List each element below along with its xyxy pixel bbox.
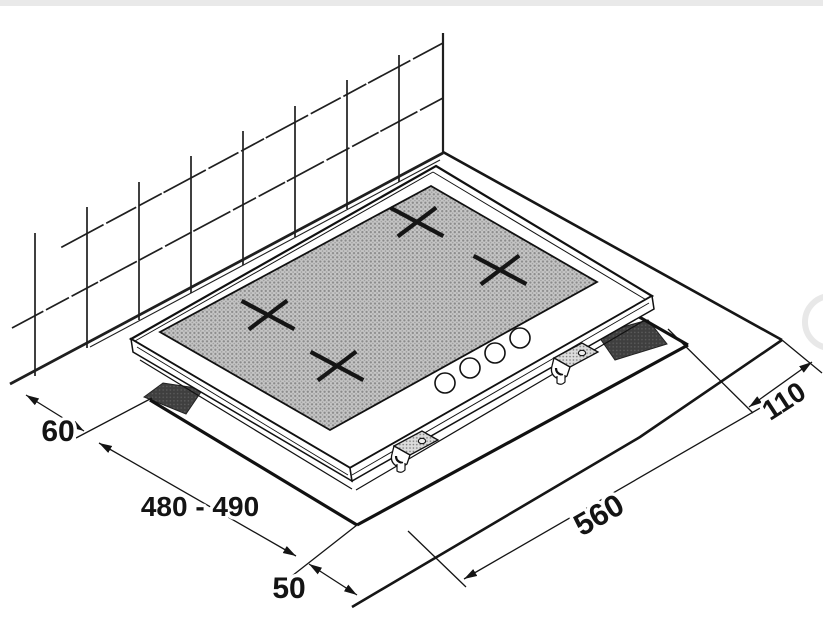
label-wall-clearance: 60 <box>41 415 74 448</box>
installation-diagram-page: 60 480 - 490 50 560 110 <box>0 0 823 626</box>
hob-installation-diagram: 60 480 - 490 50 560 110 <box>0 0 823 626</box>
control-knob <box>510 328 530 348</box>
bracket-screw-hole <box>578 350 585 355</box>
control-knob <box>435 373 455 393</box>
control-knob <box>485 343 505 363</box>
top-bar <box>0 0 823 6</box>
label-front-clearance: 50 <box>272 572 305 605</box>
label-cutout-depth: 480 - 490 <box>141 491 259 522</box>
control-knob <box>460 358 480 378</box>
bracket-screw-hole <box>418 438 425 443</box>
